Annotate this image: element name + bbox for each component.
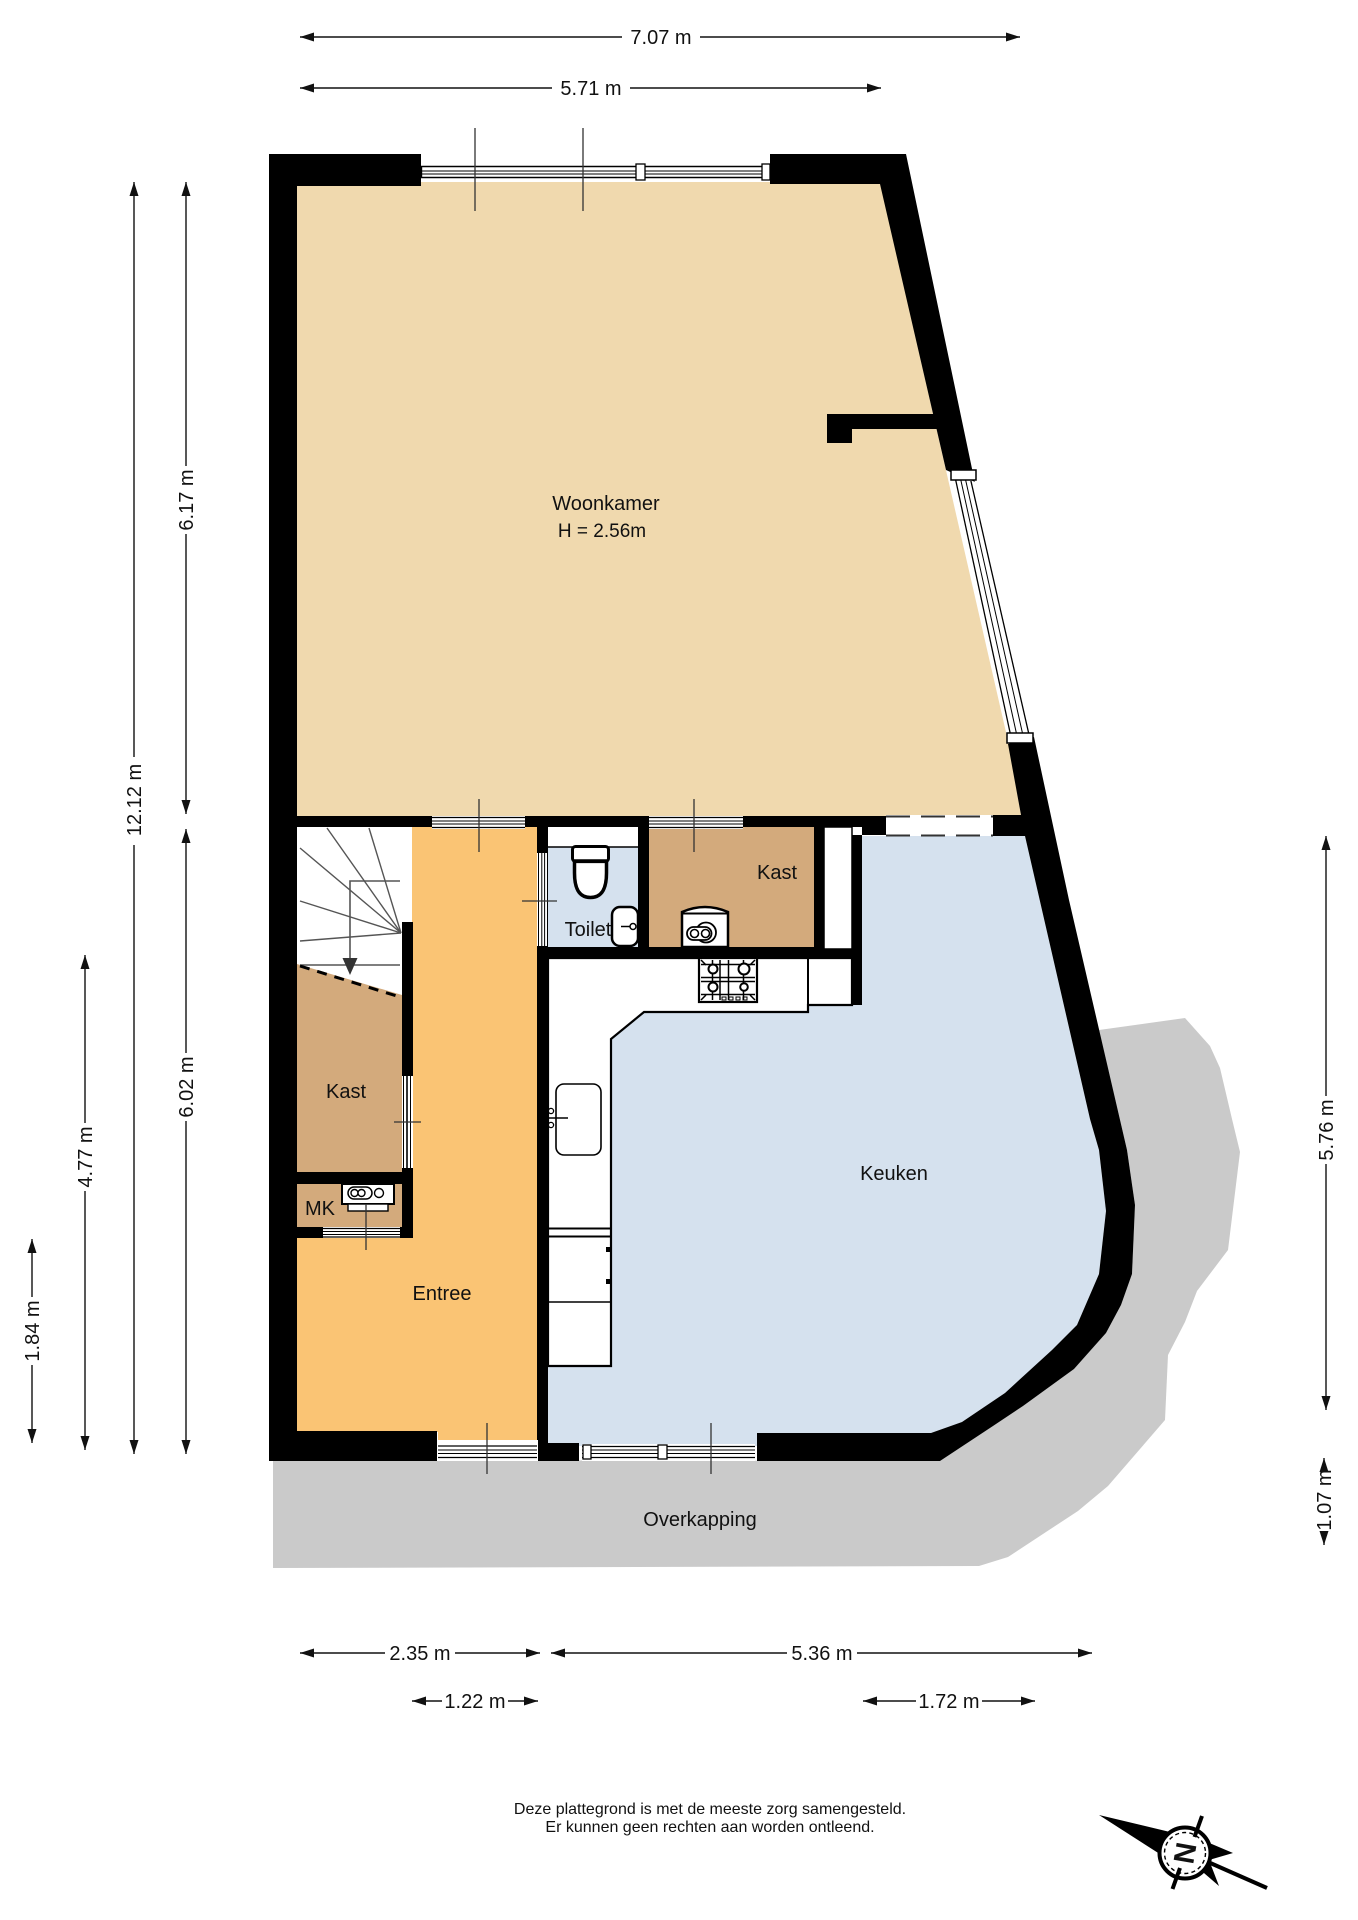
svg-text:4.77 m: 4.77 m <box>75 1126 97 1187</box>
svg-text:1.84 m: 1.84 m <box>22 1300 44 1361</box>
svg-text:Woonkamer: Woonkamer <box>552 493 660 515</box>
svg-text:2.35 m: 2.35 m <box>389 1643 450 1665</box>
svg-text:6.02 m: 6.02 m <box>176 1056 198 1117</box>
svg-text:H = 2.56m: H = 2.56m <box>558 521 646 542</box>
svg-text:Toilet: Toilet <box>565 919 612 941</box>
svg-text:Keuken: Keuken <box>860 1163 928 1185</box>
svg-text:Kast: Kast <box>326 1081 366 1103</box>
svg-text:1.72 m: 1.72 m <box>918 1691 979 1713</box>
svg-text:1.07 m: 1.07 m <box>1314 1469 1336 1530</box>
svg-text:7.07 m: 7.07 m <box>630 27 691 49</box>
svg-text:6.17 m: 6.17 m <box>176 469 198 530</box>
svg-text:Overkapping: Overkapping <box>643 1509 756 1531</box>
svg-text:MK: MK <box>305 1198 336 1220</box>
svg-text:12.12 m: 12.12 m <box>124 764 146 836</box>
svg-text:Er kunnen geen rechten aan wor: Er kunnen geen rechten aan worden ontlee… <box>545 1819 874 1836</box>
svg-text:1.22 m: 1.22 m <box>444 1691 505 1713</box>
svg-text:5.36 m: 5.36 m <box>791 1643 852 1665</box>
svg-text:Kast: Kast <box>757 862 797 884</box>
svg-text:Entree: Entree <box>413 1283 472 1305</box>
svg-text:5.71 m: 5.71 m <box>560 78 621 100</box>
svg-text:5.76 m: 5.76 m <box>1316 1099 1338 1160</box>
svg-text:Deze plattegrond is met de mee: Deze plattegrond is met de meeste zorg s… <box>514 1801 906 1818</box>
